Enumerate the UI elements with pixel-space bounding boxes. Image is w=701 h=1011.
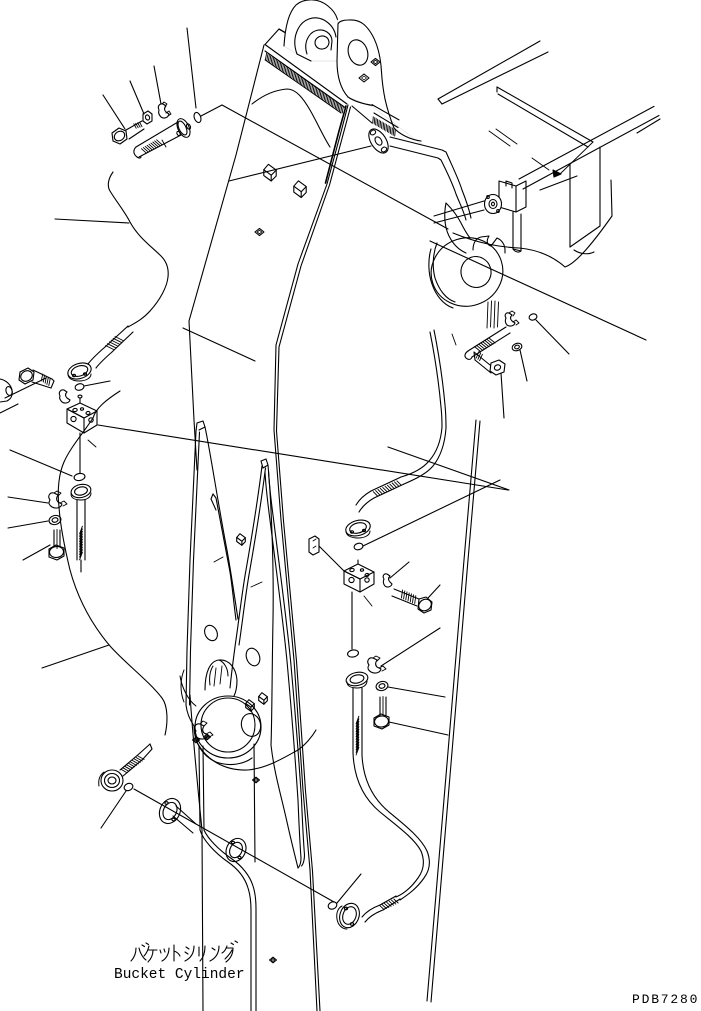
svg-text:Bucket Cylinder: Bucket Cylinder [114, 967, 245, 983]
svg-text:PDB7280: PDB7280 [632, 992, 699, 1007]
